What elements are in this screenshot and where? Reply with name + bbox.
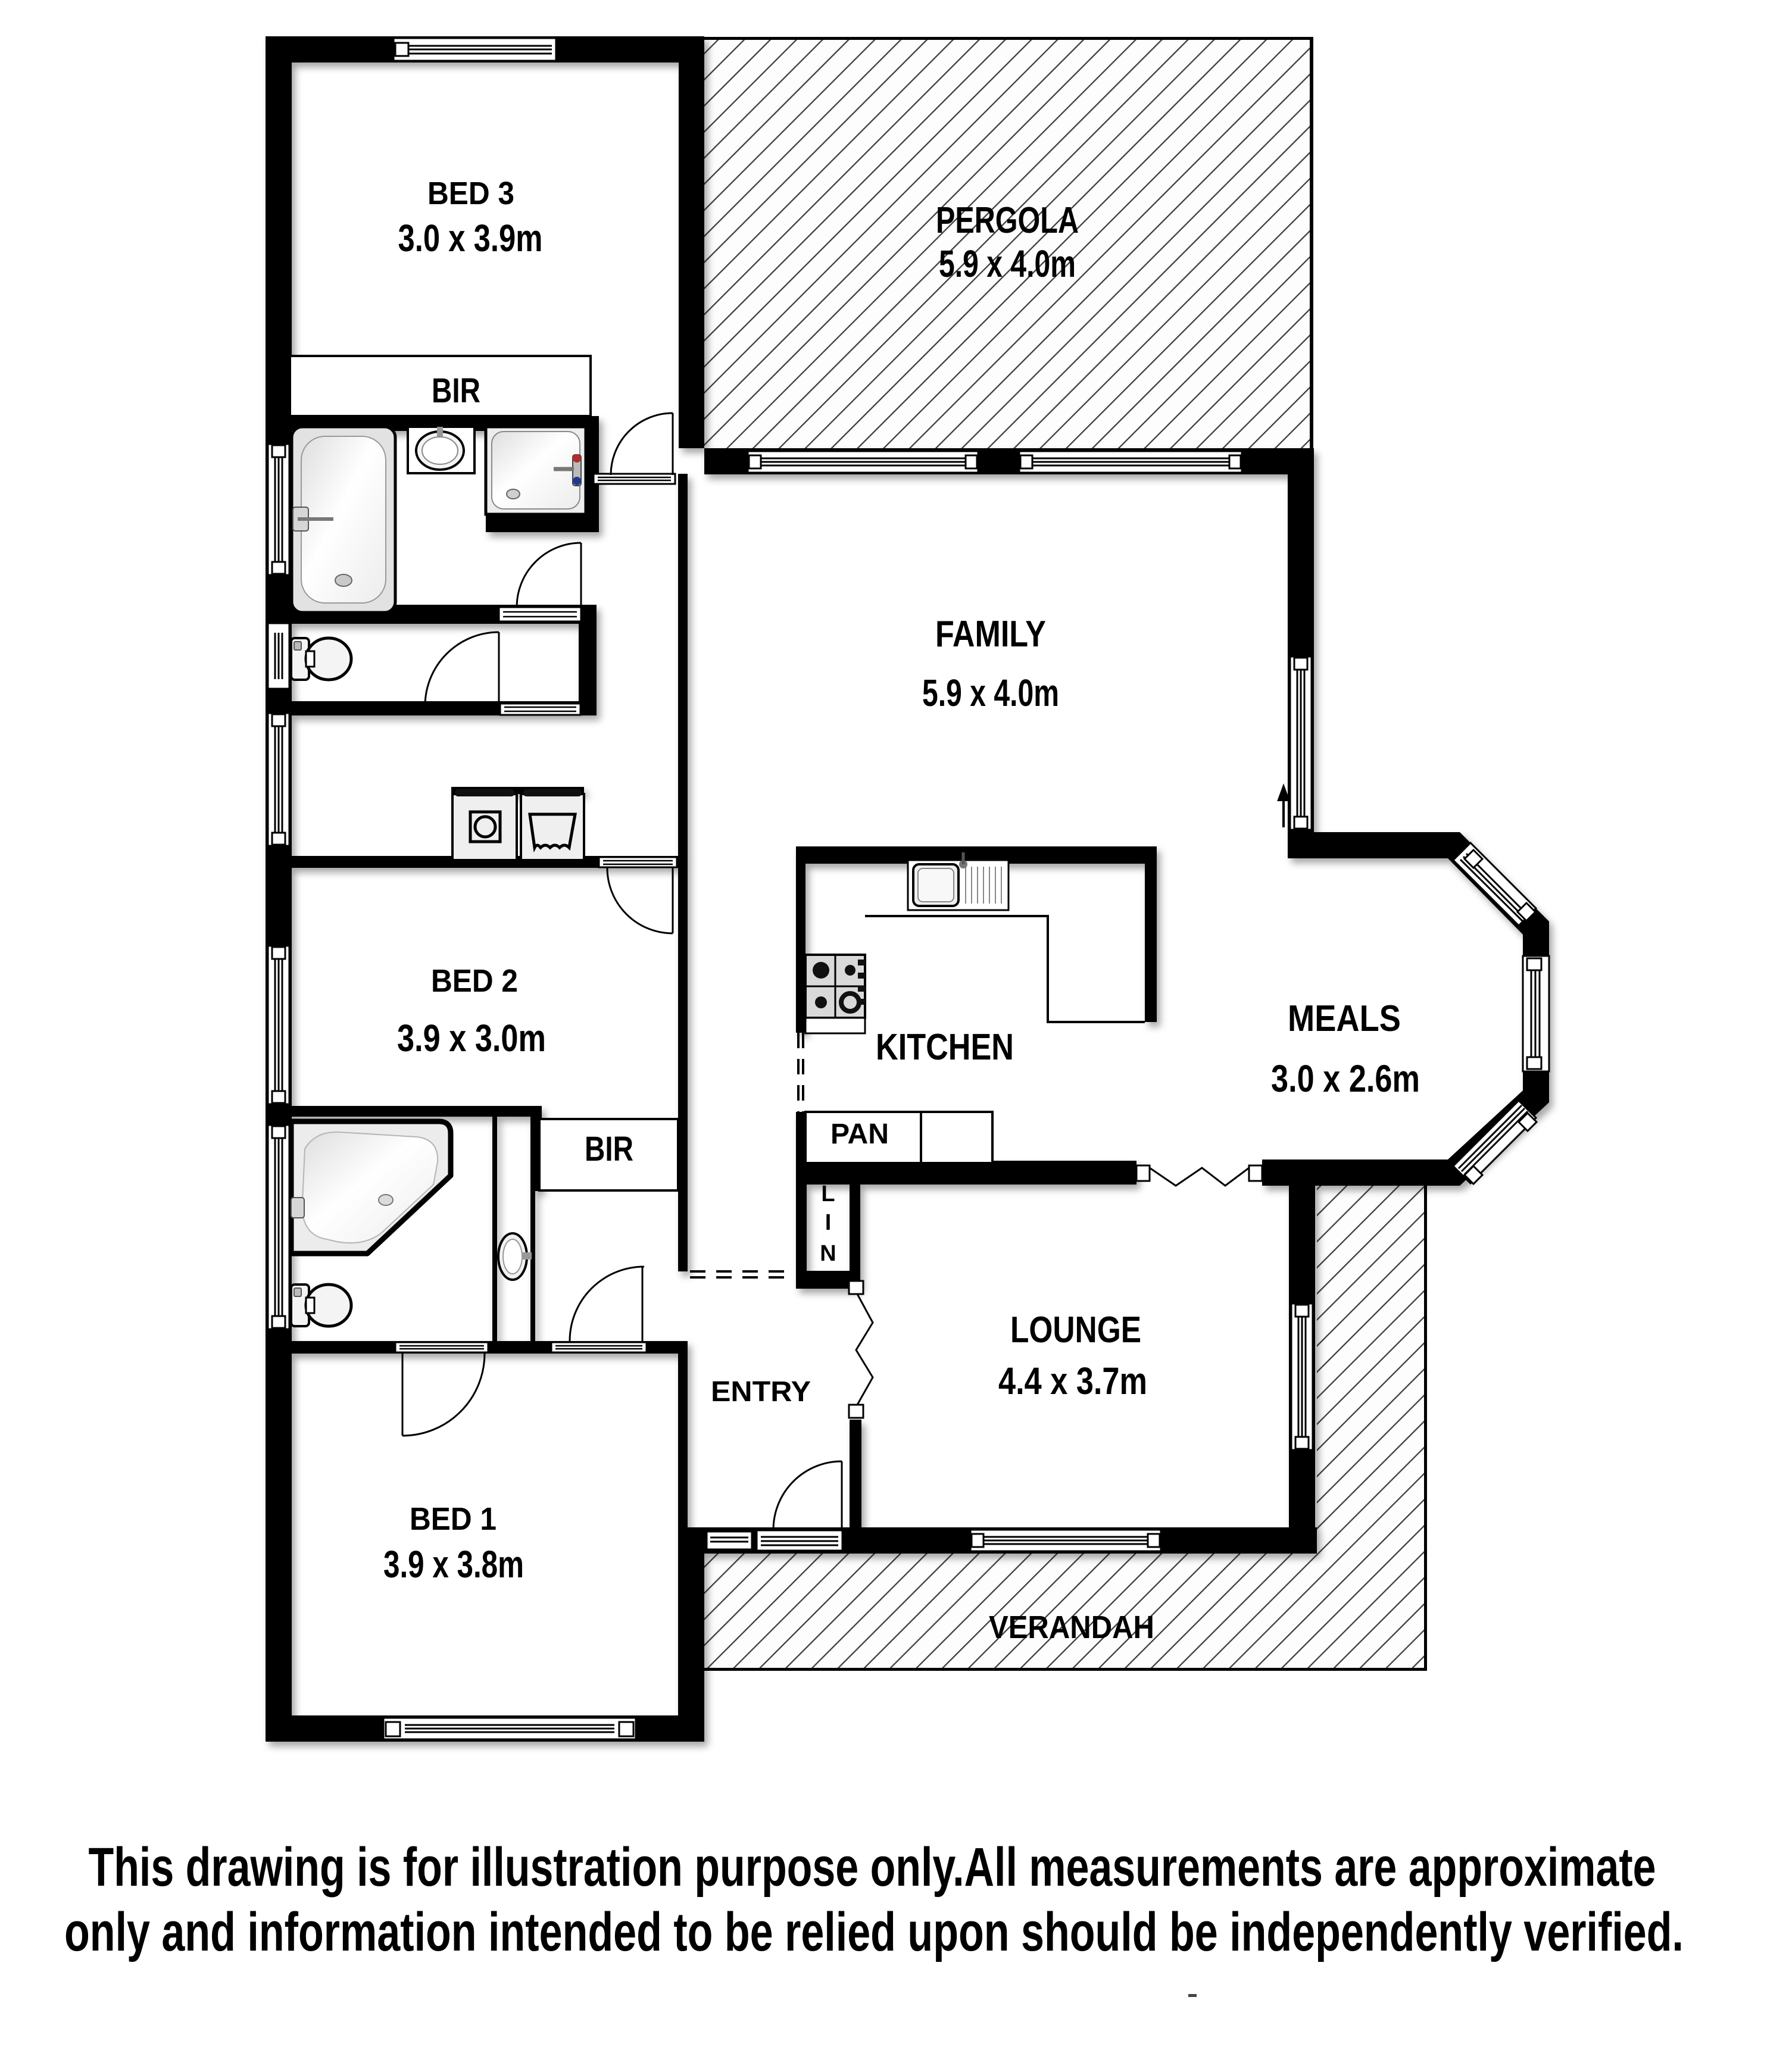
- svg-text:VERANDAH: VERANDAH: [989, 1610, 1154, 1645]
- svg-text:KITCHEN: KITCHEN: [876, 1027, 1014, 1068]
- svg-text:BED 3: BED 3: [427, 176, 514, 211]
- svg-text:I: I: [825, 1210, 832, 1235]
- svg-text:only and information intended: only and information intended to be reli…: [64, 1902, 1684, 1962]
- svg-text:This drawing is for illustrati: This drawing is for illustration purpose…: [89, 1837, 1656, 1898]
- svg-text:PAN: PAN: [830, 1118, 889, 1150]
- svg-text:3.9 x 3.0m: 3.9 x 3.0m: [397, 1017, 546, 1060]
- svg-text:5.9 x 4.0m: 5.9 x 4.0m: [939, 242, 1076, 285]
- svg-text:ENTRY: ENTRY: [711, 1376, 811, 1408]
- svg-text:BIR: BIR: [585, 1130, 633, 1168]
- svg-text:3.9 x 3.8m: 3.9 x 3.8m: [383, 1543, 524, 1586]
- svg-text:BED 2: BED 2: [431, 963, 518, 999]
- svg-text:FAMILY: FAMILY: [935, 614, 1046, 655]
- svg-text:PERGOLA: PERGOLA: [936, 200, 1079, 241]
- svg-text:3.0 x 2.6m: 3.0 x 2.6m: [1271, 1057, 1420, 1100]
- svg-text:5.9 x 4.0m: 5.9 x 4.0m: [922, 671, 1059, 714]
- svg-text:LOUNGE: LOUNGE: [1010, 1310, 1141, 1351]
- svg-text:4.4 x 3.7m: 4.4 x 3.7m: [998, 1360, 1147, 1402]
- svg-text:L: L: [821, 1182, 835, 1207]
- svg-text:3.0 x 3.9m: 3.0 x 3.9m: [398, 217, 543, 260]
- svg-text:BIR: BIR: [432, 371, 480, 410]
- svg-text:N: N: [820, 1241, 836, 1266]
- svg-text:BED 1: BED 1: [410, 1501, 497, 1537]
- svg-text:MEALS: MEALS: [1288, 998, 1401, 1039]
